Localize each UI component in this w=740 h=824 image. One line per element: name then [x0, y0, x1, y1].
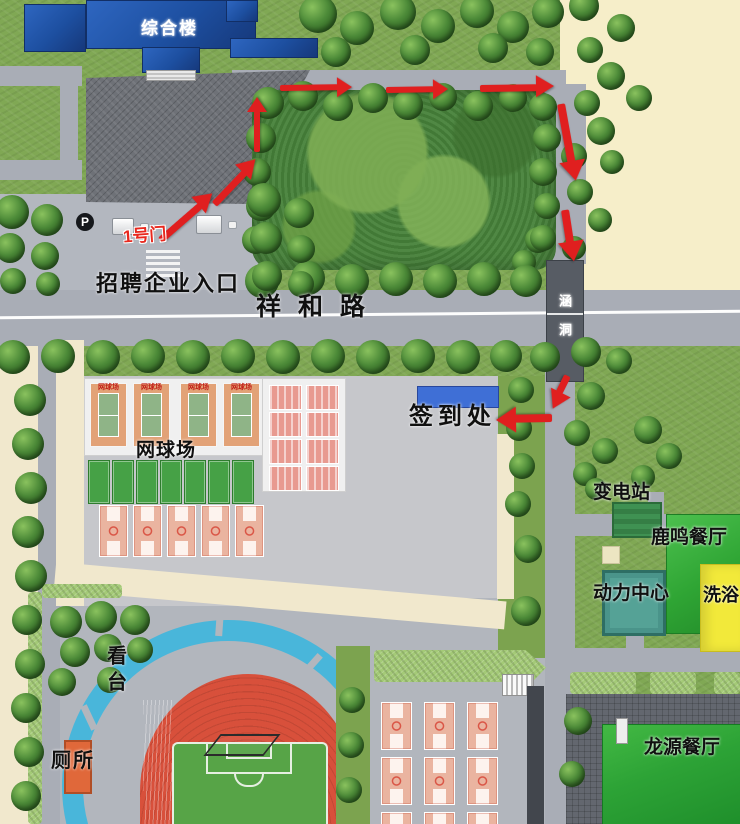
tree [597, 62, 625, 90]
pink-court [269, 412, 302, 437]
tree [287, 235, 315, 263]
basketball-court [167, 505, 196, 557]
tennis-court-surface [98, 393, 119, 437]
tree [564, 420, 590, 446]
tree [510, 265, 542, 297]
route-arrow [480, 87, 554, 88]
tree [393, 90, 423, 120]
green-court [136, 460, 158, 504]
tree [446, 340, 480, 374]
longyuan-restaurant-label: 龙源餐厅 [644, 738, 720, 759]
basketball-court [381, 812, 412, 824]
green-court [184, 460, 206, 504]
arrow-head [337, 77, 352, 97]
tree [626, 85, 652, 111]
arrow-head [536, 75, 554, 97]
tree [529, 158, 557, 186]
tree [505, 491, 531, 517]
tree [14, 737, 44, 767]
comprehensive-building-east-wing [230, 38, 318, 58]
tree [460, 0, 494, 28]
pink-court [306, 412, 339, 437]
tree [176, 340, 210, 374]
tree [511, 596, 541, 626]
tennis-court-surface [141, 393, 162, 437]
tree [530, 342, 560, 372]
tree [221, 339, 255, 373]
tree [463, 91, 493, 121]
tree [423, 264, 457, 298]
stands-label: 看台 [103, 645, 125, 697]
tree [514, 535, 542, 563]
basketball-court [424, 812, 455, 824]
gate-booth [196, 215, 222, 234]
hedge [570, 672, 636, 694]
tree [266, 340, 300, 374]
tree [11, 693, 41, 723]
basketball-court [467, 812, 498, 824]
tree [86, 340, 120, 374]
tree [656, 443, 682, 469]
green-court [160, 460, 182, 504]
tree [284, 198, 314, 228]
tree [588, 208, 612, 232]
basketball-court [424, 757, 455, 805]
hedge [714, 672, 740, 694]
tree [577, 37, 603, 63]
tree [490, 340, 522, 372]
tree [421, 9, 455, 43]
tree [400, 35, 430, 65]
pink-court [306, 439, 339, 464]
route-arrow [280, 87, 353, 88]
tree [36, 272, 60, 296]
basketball-court [381, 702, 412, 750]
arrow-shaft [254, 111, 260, 152]
green-court [112, 460, 134, 504]
arrow-head [433, 79, 448, 99]
tree [574, 90, 600, 116]
tree [634, 416, 662, 444]
tree [127, 637, 153, 663]
pink-court [269, 466, 302, 491]
tennis-court: 网球场 [223, 383, 260, 447]
tree [15, 649, 45, 679]
tree [252, 261, 282, 291]
tree [571, 337, 601, 367]
tree [15, 472, 47, 504]
route-arrow [495, 418, 552, 419]
tree [12, 428, 44, 460]
tree [247, 183, 281, 217]
tree [12, 516, 44, 548]
arrow-shaft [280, 84, 338, 91]
basketball-court [381, 757, 412, 805]
tree [41, 339, 75, 373]
road-label-xianghe: 祥 和 路 [256, 294, 370, 321]
hedge [650, 672, 696, 694]
utility-pad [602, 546, 620, 564]
tree [567, 179, 593, 205]
pink-court [306, 466, 339, 491]
tree [120, 605, 150, 635]
substation-label: 变电站 [593, 483, 650, 504]
track-lanes [143, 700, 173, 824]
route-arrow [386, 89, 449, 90]
arrow-shaft [480, 84, 537, 92]
tree [250, 222, 282, 254]
tennis-court: 网球场 [180, 383, 217, 447]
arrow-head [496, 406, 516, 432]
tree [356, 340, 390, 374]
tennis-court-tag: 网球场 [134, 384, 169, 392]
tree [31, 242, 59, 270]
tree [592, 438, 618, 464]
campus-map: P 网球场网球场网球场网球场综合楼1号门招聘企业入口祥 和 路涵洞签到处网球场变… [0, 0, 740, 824]
pink-court [306, 385, 339, 410]
bath-label: 洗浴 [703, 586, 739, 605]
tree [564, 707, 592, 735]
tennis-label: 网球场 [136, 441, 196, 462]
toilet-label: 厕所 [51, 751, 95, 773]
path [0, 160, 82, 180]
tree [338, 732, 364, 758]
tree [467, 262, 501, 296]
parking-icon: P [76, 213, 94, 231]
path [0, 66, 82, 86]
tree [14, 384, 46, 416]
tree [60, 637, 90, 667]
tree [50, 606, 82, 638]
tree [131, 339, 165, 373]
green-court [208, 460, 230, 504]
chimney [616, 718, 628, 744]
green-court [232, 460, 254, 504]
building-label-zonghelou: 综合楼 [141, 20, 198, 38]
tree [533, 124, 561, 152]
luming-restaurant-label: 鹿鸣餐厅 [651, 528, 727, 549]
tree [606, 348, 632, 374]
tree [336, 777, 362, 803]
signin-label: 签到处 [409, 404, 496, 430]
basketball-court [235, 505, 264, 557]
tree [358, 83, 388, 113]
comprehensive-building-west [24, 4, 86, 52]
gate-pillar [228, 221, 237, 229]
arrow-head [558, 239, 587, 263]
power-center-label: 动力中心 [593, 584, 669, 605]
pink-court [269, 439, 302, 464]
tree [607, 14, 635, 42]
green-court [88, 460, 110, 504]
tree [12, 605, 42, 635]
tree [11, 781, 41, 811]
tree [577, 382, 605, 410]
tennis-court-tag: 网球场 [224, 384, 259, 392]
tree [15, 560, 47, 592]
tree [299, 0, 337, 33]
arrow-shaft [386, 86, 434, 93]
tree [526, 38, 554, 66]
tree [559, 761, 585, 787]
basketball-court [133, 505, 162, 557]
tennis-court-surface [188, 393, 209, 437]
tennis-court-tag: 网球场 [91, 384, 126, 392]
bath-building [700, 564, 740, 652]
tree [587, 117, 615, 145]
tree [401, 339, 435, 373]
tennis-court-tag: 网球场 [181, 384, 216, 392]
pink-court [269, 385, 302, 410]
tennis-court: 网球场 [90, 383, 127, 447]
basketball-court [467, 702, 498, 750]
tree [48, 668, 76, 696]
tree [508, 377, 534, 403]
tree [321, 37, 351, 67]
wall [527, 686, 544, 824]
tree [0, 268, 26, 294]
tree [339, 687, 365, 713]
basketball-court [467, 757, 498, 805]
tree [478, 33, 508, 63]
arrow-head [247, 97, 267, 112]
basketball-court [99, 505, 128, 557]
tennis-court-surface [231, 393, 252, 437]
tree [246, 123, 276, 153]
comprehensive-building-east [226, 0, 258, 22]
building-steps [146, 70, 196, 81]
tennis-court: 网球场 [133, 383, 170, 447]
tree [534, 193, 560, 219]
basketball-court [424, 702, 455, 750]
path [60, 84, 78, 168]
tree [509, 453, 535, 479]
tree [379, 262, 413, 296]
tree [85, 601, 117, 633]
basketball-court [201, 505, 230, 557]
entrance-label: 招聘企业入口 [96, 272, 240, 296]
gate1-label: 1号门 [122, 226, 167, 247]
tree [380, 0, 416, 30]
arrow-shaft [515, 414, 552, 423]
culvert-label: 涵洞 [557, 294, 571, 352]
tree [311, 339, 345, 373]
tree [31, 204, 63, 236]
tree [600, 150, 624, 174]
tree [530, 225, 556, 251]
